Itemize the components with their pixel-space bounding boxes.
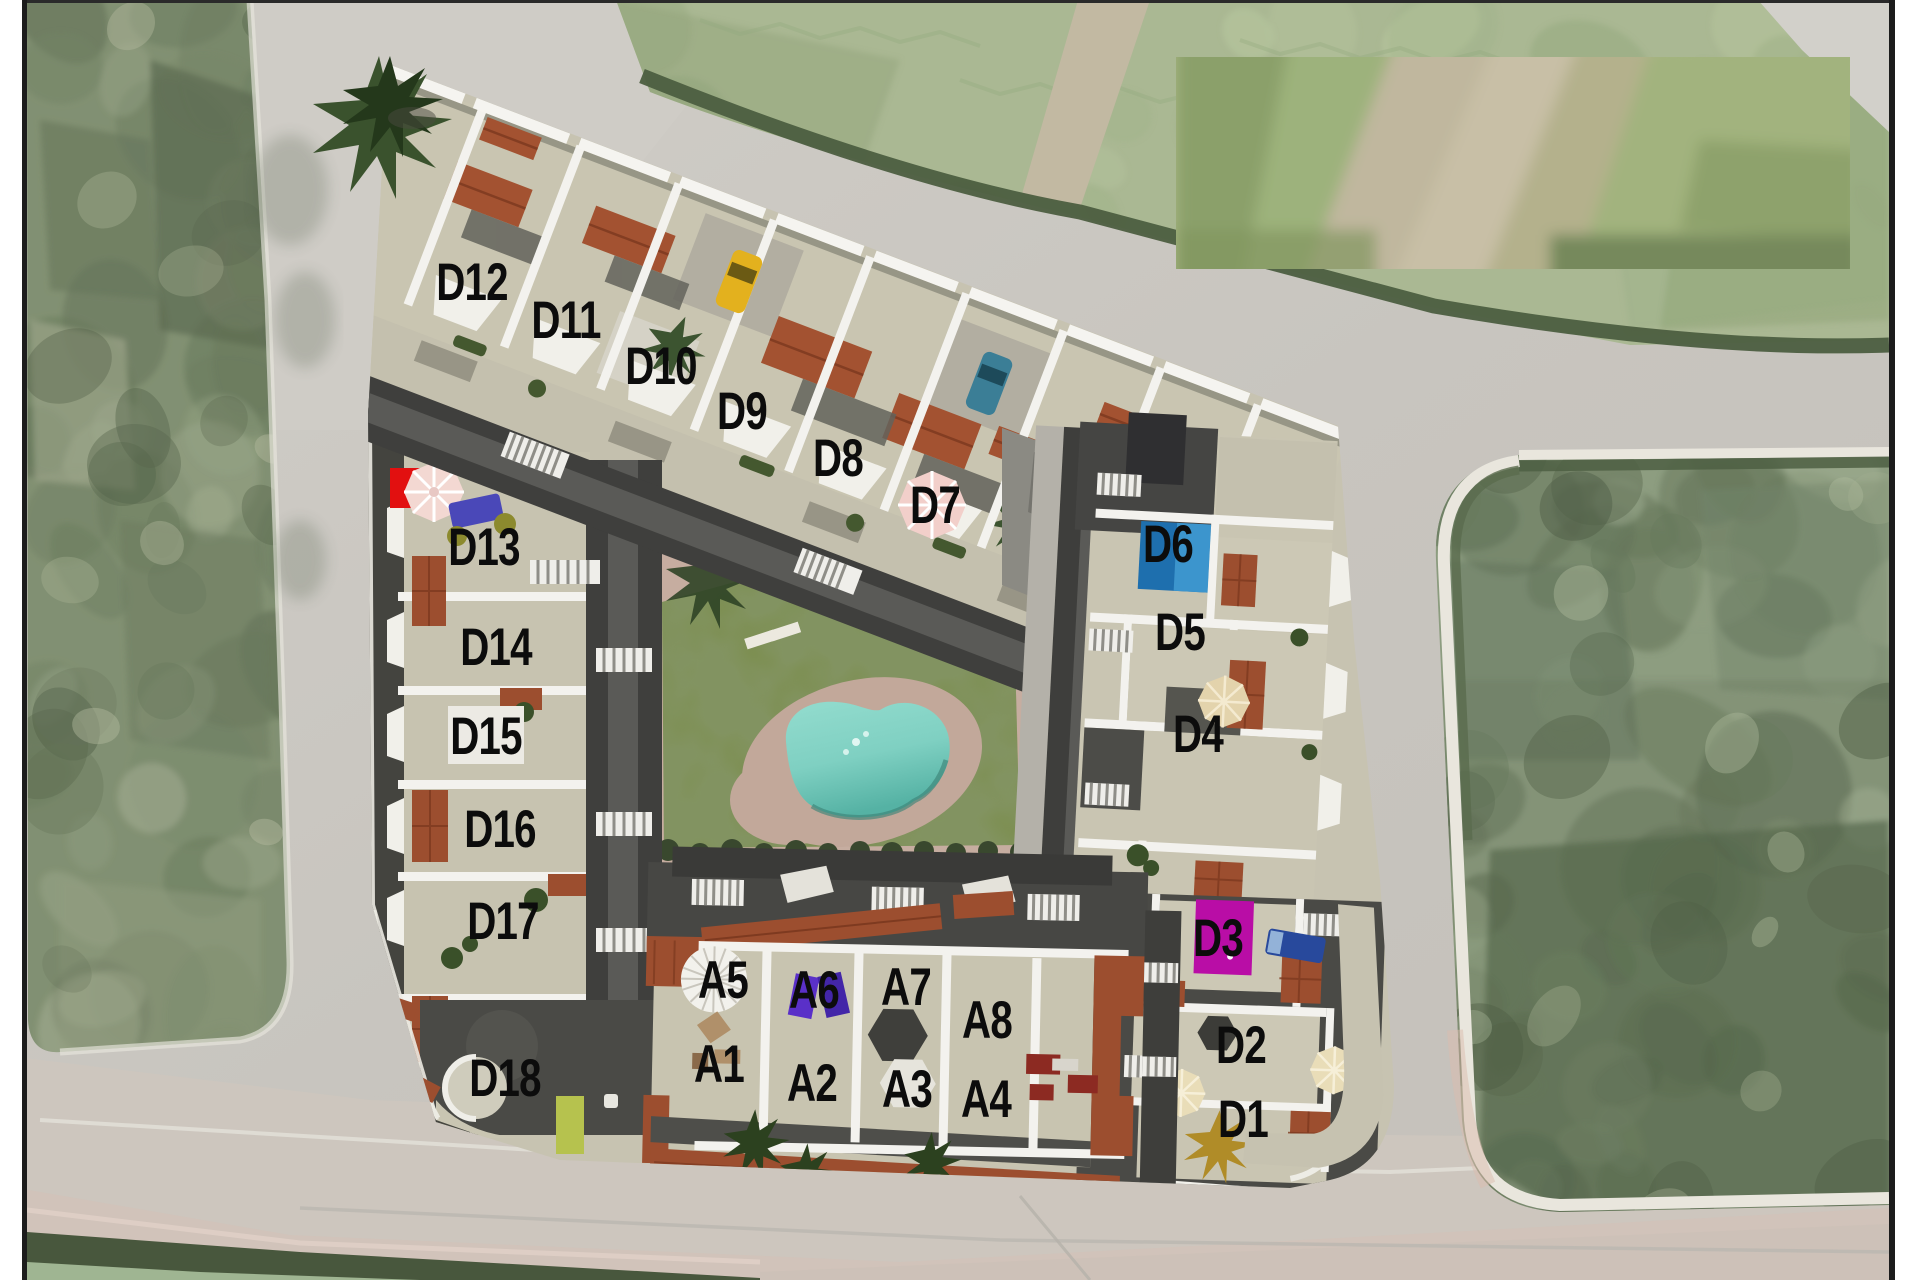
svg-text:A7: A7 xyxy=(881,957,931,1017)
svg-text:D11: D11 xyxy=(531,290,600,350)
svg-text:A8: A8 xyxy=(962,990,1012,1050)
svg-text:D17: D17 xyxy=(467,891,539,951)
svg-text:D10: D10 xyxy=(625,336,697,396)
svg-text:A5: A5 xyxy=(698,950,748,1010)
svg-text:A2: A2 xyxy=(787,1053,837,1113)
svg-text:D4: D4 xyxy=(1173,704,1224,764)
svg-text:D13: D13 xyxy=(448,517,520,577)
svg-text:D5: D5 xyxy=(1155,602,1205,662)
svg-text:D1: D1 xyxy=(1218,1089,1268,1149)
svg-text:D7: D7 xyxy=(910,475,960,535)
svg-text:D2: D2 xyxy=(1216,1015,1266,1075)
svg-text:D8: D8 xyxy=(813,428,863,488)
svg-text:D18: D18 xyxy=(469,1048,541,1108)
svg-text:D16: D16 xyxy=(464,799,536,859)
svg-text:A1: A1 xyxy=(694,1034,744,1094)
svg-text:D9: D9 xyxy=(717,381,767,441)
svg-text:D12: D12 xyxy=(436,252,508,312)
svg-text:A4: A4 xyxy=(961,1069,1012,1129)
svg-text:A3: A3 xyxy=(882,1059,932,1119)
svg-text:D3: D3 xyxy=(1193,908,1243,968)
svg-text:A6: A6 xyxy=(789,960,839,1020)
svg-text:D14: D14 xyxy=(460,617,532,677)
svg-text:D15: D15 xyxy=(450,706,522,766)
svg-text:D6: D6 xyxy=(1143,514,1193,574)
